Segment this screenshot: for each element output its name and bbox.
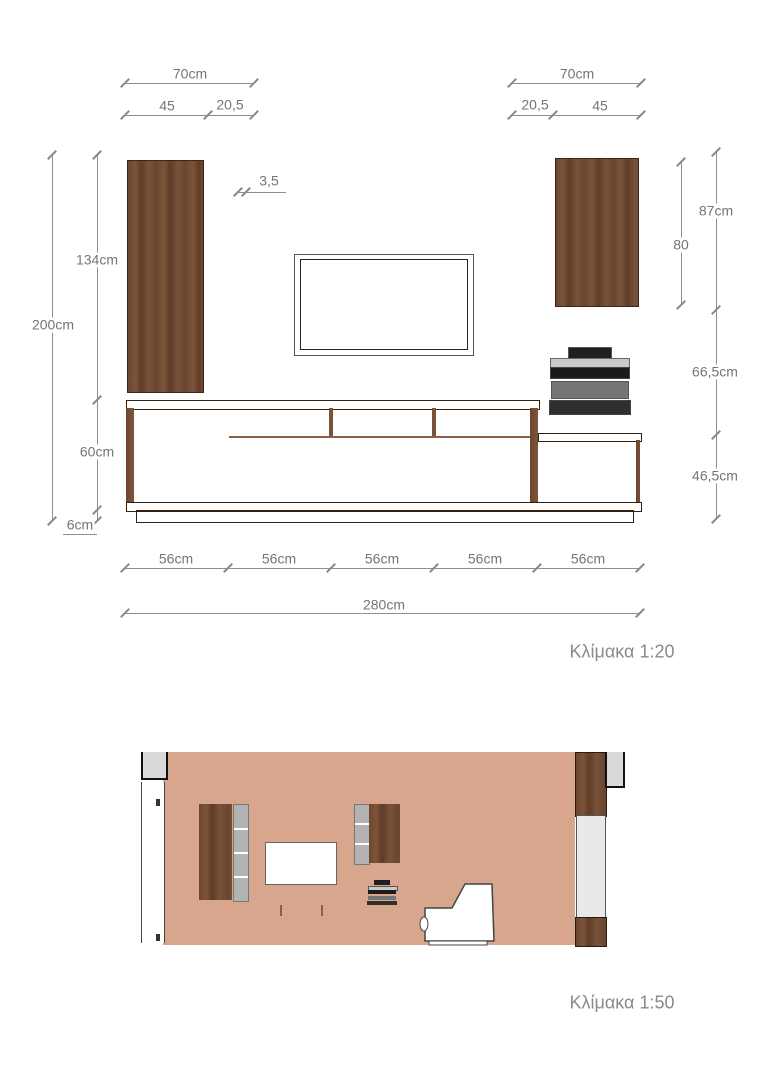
dim-line-total-width	[125, 613, 640, 614]
shelf-cell	[203, 318, 234, 371]
section-plinth	[202, 943, 400, 946]
elevation-view: 70cm 45 20,5 70cm 20,5 45 3,5 200cm 134c…	[0, 0, 768, 680]
shelf-cell	[203, 159, 234, 214]
audio-unit-top	[374, 880, 390, 885]
scale-label-elevation: Κλίμακα 1:20	[569, 642, 674, 663]
section-tall-cabinet-door	[199, 804, 232, 900]
dim-line-total-height	[52, 155, 53, 521]
right-wall-beam	[605, 752, 625, 788]
floor-slab-bottom-line	[65, 959, 700, 962]
wall-seam-mark	[170, 753, 172, 763]
shelf-line	[355, 843, 369, 845]
shelf-cell	[516, 247, 549, 290]
section-wall-cabinet-door	[369, 804, 400, 863]
dim-label-left-door: 45	[157, 99, 177, 114]
audio-unit	[368, 890, 396, 894]
dim-label-low-unit: 46,5cm	[690, 469, 740, 484]
dim-label-door-1: 56cm	[157, 552, 195, 567]
sofa	[415, 878, 505, 948]
dim-label-wall-unit-height: 87cm	[697, 204, 735, 219]
dim-label-left-width: 70cm	[171, 67, 209, 82]
niche-divider	[280, 905, 282, 916]
dim-label-right-width: 70cm	[558, 67, 596, 82]
wall-cabinet-wood-door	[555, 158, 639, 307]
audio-unit	[550, 367, 630, 379]
shelf-line	[234, 852, 248, 854]
low-unit-right-side	[636, 440, 640, 502]
dim-label-plinth-height: 6cm	[65, 518, 95, 533]
scale-label-section: Κλίμακα 1:50	[569, 993, 674, 1014]
dim-line-doors	[125, 568, 640, 569]
audio-unit	[551, 381, 629, 399]
section-tv-screen	[267, 844, 333, 881]
dim-line-wall-unit-height	[716, 152, 717, 310]
base-door-5	[539, 440, 636, 502]
sofa-knob	[420, 917, 428, 931]
dim-label-total-width: 280cm	[361, 598, 407, 613]
dim-line-left-width	[125, 83, 254, 84]
audio-unit	[549, 400, 631, 415]
base-door-2	[230, 439, 329, 502]
section-view: Κλίμακα 1:50	[0, 700, 768, 1086]
dim-line-tall-height	[97, 155, 98, 400]
dim-label-total-height: 200cm	[30, 318, 76, 333]
right-column-panel	[576, 815, 606, 919]
dim-label-door-5: 56cm	[569, 552, 607, 567]
door-hinge	[156, 799, 160, 806]
dim-label-panel-thickness: 3,5	[257, 174, 280, 189]
dim-label-mid-gap: 66,5cm	[690, 365, 740, 380]
section-audio-stack	[367, 880, 397, 905]
dim-label-door-3: 56cm	[363, 552, 401, 567]
ceiling-slab	[65, 736, 700, 749]
section-base-door-4	[322, 917, 362, 940]
shelf-line	[355, 823, 369, 825]
door-hinge	[156, 934, 160, 941]
sofa-body	[425, 884, 494, 941]
shelf-line	[234, 876, 248, 878]
tv-screen	[300, 259, 468, 350]
left-door-lintel-line	[141, 795, 164, 796]
section-base-door-3	[281, 917, 321, 940]
base-door-3	[332, 439, 431, 502]
niche-divider	[432, 408, 436, 436]
floor-slab	[65, 948, 700, 959]
dim-label-right-shelf: 20,5	[519, 98, 550, 113]
section-tall-cabinet-shelves	[233, 804, 249, 902]
audio-unit	[368, 896, 396, 900]
base-left-side	[126, 408, 134, 503]
plinth	[136, 510, 634, 523]
shelf-cell	[203, 214, 234, 266]
audio-unit	[367, 901, 397, 905]
sofa-feet	[429, 941, 487, 945]
dim-underline-plinth	[63, 534, 97, 535]
dim-label-door-2: 56cm	[260, 552, 298, 567]
section-base-niches	[240, 905, 363, 916]
dim-label-tall-height: 134cm	[74, 253, 120, 268]
niche-divider	[321, 905, 323, 916]
dim-label-base-height: 60cm	[78, 445, 116, 460]
dim-line-wall-unit-inner	[681, 162, 682, 305]
audio-stack	[545, 345, 635, 415]
base-door-1	[134, 408, 229, 502]
dim-label-door-4: 56cm	[466, 552, 504, 567]
dim-line-right-width	[512, 83, 641, 84]
shelf-cell	[516, 204, 549, 247]
tall-cabinet-wood-door	[127, 160, 204, 393]
base-mid-side	[530, 408, 538, 503]
dim-line-right-parts	[512, 115, 641, 116]
wall-cabinet-shelf-column	[516, 158, 553, 305]
right-wall-line	[625, 791, 626, 945]
dim-line-left-parts	[125, 115, 254, 116]
right-column-wood-bottom	[575, 917, 607, 947]
left-door	[141, 782, 165, 943]
section-base-door-1	[200, 905, 240, 940]
right-column-wood-top	[575, 752, 607, 817]
section-base-door-5	[364, 917, 402, 940]
left-wall-beam	[141, 752, 168, 780]
dim-label-right-door: 45	[590, 99, 610, 114]
base-door-4	[434, 439, 529, 502]
drawing-sheet: 70cm 45 20,5 70cm 20,5 45 3,5 200cm 134c…	[0, 0, 768, 1086]
section-wall-cabinet-shelves	[354, 804, 370, 865]
shelf-cell	[203, 266, 234, 318]
shelf-line	[234, 828, 248, 830]
niche-divider	[329, 408, 333, 436]
shelf-cell	[516, 158, 549, 204]
dim-label-left-shelf: 20,5	[214, 98, 245, 113]
section-base-door-2	[240, 917, 280, 940]
base-niche-row	[229, 408, 530, 438]
dim-label-wall-unit-inner: 80	[671, 238, 691, 253]
left-door-leaf-line	[157, 796, 158, 943]
